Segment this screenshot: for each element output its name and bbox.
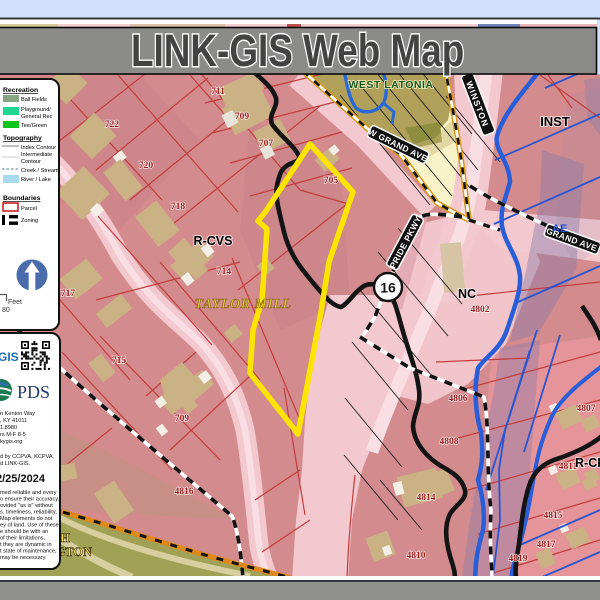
svg-text:Feet: Feet — [8, 299, 22, 306]
svg-text:of their limitations,: of their limitations, — [0, 536, 46, 542]
svg-text:2/25/2024: 2/25/2024 — [0, 473, 46, 485]
svg-text:d by CCPVA, KCPVA,: d by CCPVA, KCPVA, — [0, 454, 55, 460]
svg-text:NC: NC — [458, 287, 476, 301]
svg-text:t state of maintenance,: t state of maintenance, — [0, 549, 57, 555]
svg-text:General Rec: General Rec — [21, 114, 53, 120]
svg-text:may be necessary.: may be necessary. — [0, 555, 47, 561]
svg-text:4817: 4817 — [537, 540, 556, 550]
svg-text:kygis.org: kygis.org — [0, 439, 22, 445]
svg-text:, KY 41011: , KY 41011 — [0, 418, 27, 424]
svg-text:Recreation: Recreation — [3, 87, 38, 94]
svg-text:80: 80 — [2, 307, 10, 314]
svg-text:R-CVS: R-CVS — [194, 234, 233, 248]
svg-text:709: 709 — [175, 414, 190, 424]
svg-text:PDS: PDS — [17, 382, 50, 402]
svg-text:16: 16 — [380, 280, 396, 296]
svg-text:Creek / Stream: Creek / Stream — [21, 168, 59, 174]
svg-text:707: 707 — [259, 139, 274, 149]
svg-text:Boundaries: Boundaries — [3, 195, 41, 202]
svg-text:4808: 4808 — [440, 437, 459, 447]
svg-text:GIS: GIS — [0, 350, 19, 364]
svg-text:s, timeliness, reliability,: s, timeliness, reliability, — [0, 510, 57, 516]
svg-text:711: 711 — [211, 87, 225, 97]
svg-text:R-CP: R-CP — [575, 456, 600, 470]
svg-text:LINK-GIS Web Map: LINK-GIS Web Map — [131, 26, 464, 76]
svg-text:Ball Fields: Ball Fields — [21, 97, 47, 103]
svg-text:Zoning: Zoning — [21, 218, 38, 224]
svg-text:Playground/: Playground/ — [21, 107, 51, 113]
svg-text:4814: 4814 — [417, 493, 436, 503]
svg-text:4807: 4807 — [577, 404, 596, 414]
svg-text:Tee/Green: Tee/Green — [21, 123, 47, 129]
svg-text:t they are dynamic in: t they are dynamic in — [0, 542, 52, 548]
svg-text:1.8980: 1.8980 — [0, 425, 17, 431]
svg-text:ey of land. Use of these: ey of land. Use of these — [0, 523, 59, 529]
svg-text:Intermediate: Intermediate — [21, 152, 52, 158]
svg-text:4806: 4806 — [449, 394, 468, 404]
svg-text:709: 709 — [235, 112, 250, 122]
svg-text:717: 717 — [61, 289, 76, 299]
svg-text:4819: 4819 — [509, 554, 528, 564]
svg-text:714: 714 — [217, 267, 232, 277]
svg-text:718: 718 — [171, 202, 186, 212]
svg-text:Index Contour: Index Contour — [21, 145, 56, 151]
svg-text:722: 722 — [105, 120, 120, 130]
svg-text:Parcel: Parcel — [21, 206, 37, 212]
svg-text:med reliable and every: med reliable and every — [0, 490, 57, 496]
svg-text:4802: 4802 — [471, 305, 490, 315]
svg-text:Map elements do not: Map elements do not — [0, 516, 53, 522]
svg-text:720: 720 — [139, 161, 154, 171]
svg-text:715: 715 — [112, 356, 127, 366]
svg-text:o ensure their accuracy.: o ensure their accuracy. — [0, 497, 60, 503]
svg-text:4816: 4816 — [175, 487, 194, 497]
svg-text:TAYLOR MILL: TAYLOR MILL — [195, 297, 292, 312]
svg-text:Topography: Topography — [3, 135, 42, 142]
svg-text:e should be with an: e should be with an — [0, 529, 48, 535]
svg-text:4815: 4815 — [544, 511, 563, 521]
svg-text:rs M-F 8-5: rs M-F 8-5 — [0, 432, 26, 438]
svg-text:n Kenton Way: n Kenton Way — [0, 411, 35, 417]
svg-text:AE: AE — [552, 223, 567, 235]
svg-text:d LINK-GIS.: d LINK-GIS. — [0, 461, 31, 467]
svg-text:River / Lake: River / Lake — [21, 177, 51, 183]
svg-text:INST: INST — [540, 114, 570, 129]
svg-text:4810: 4810 — [407, 551, 426, 561]
svg-text:Contour: Contour — [21, 159, 41, 165]
svg-text:WEST LATONIA: WEST LATONIA — [349, 79, 434, 91]
svg-text:705: 705 — [324, 176, 339, 186]
svg-text:ovided "as is" without: ovided "as is" without — [0, 503, 53, 509]
